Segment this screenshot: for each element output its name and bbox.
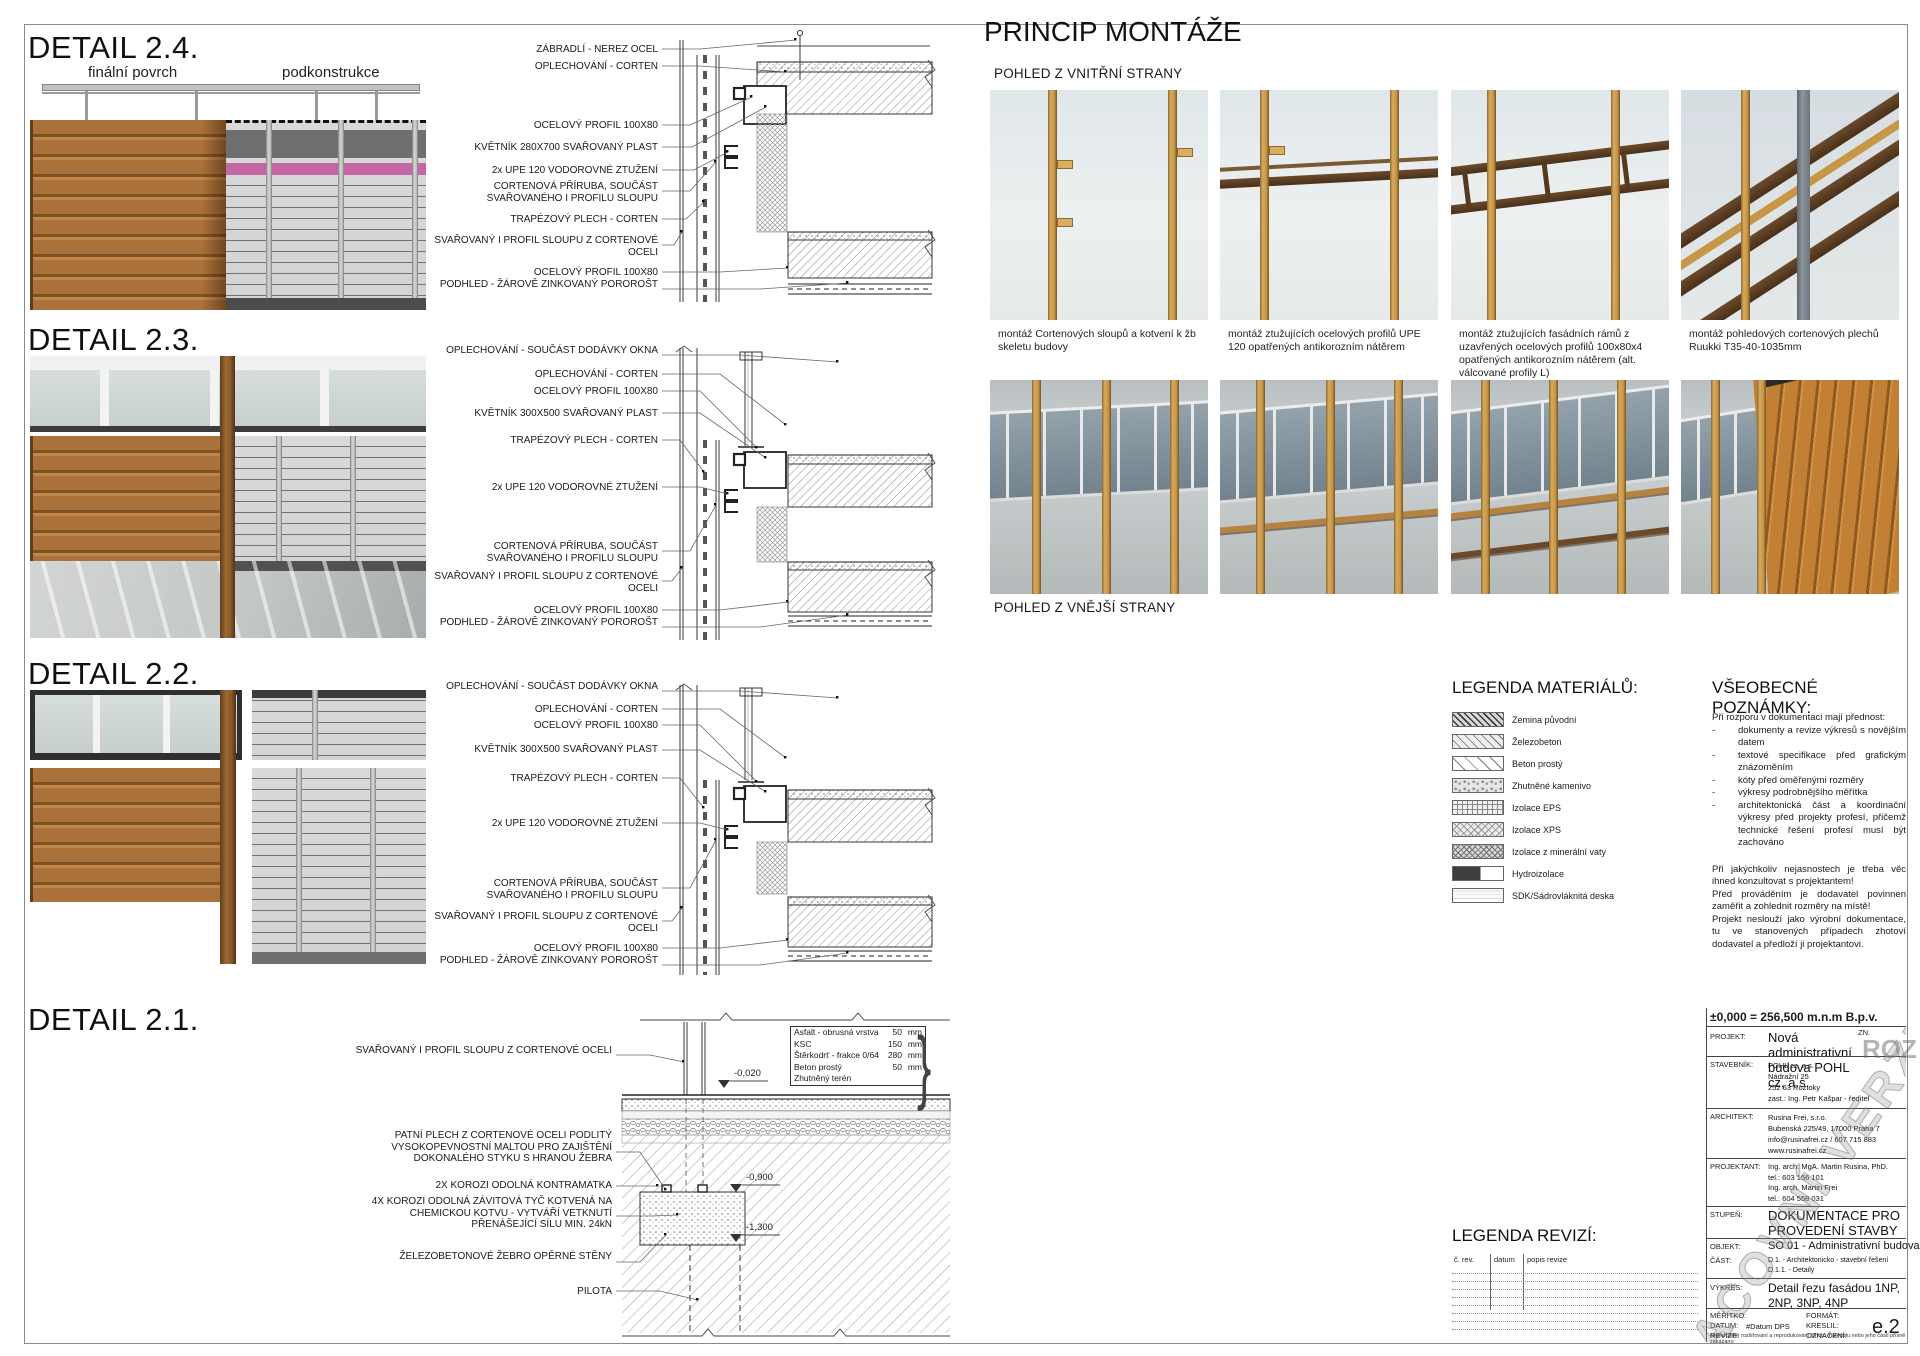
corten-post — [1741, 90, 1750, 320]
swatch-mineral-wool — [1452, 844, 1504, 859]
legend-materials-title: LEGENDA MATERIÁLŮ: — [1452, 678, 1638, 698]
label: SVAŘOVANÝ I PROFIL SLOUPU Z CORTENOVÉ OC… — [423, 571, 658, 594]
drawing-sheet: { "details": [ { "title": "DETAIL 2.4.",… — [0, 0, 1920, 1356]
date-value: #Datum DPS — [1746, 1321, 1790, 1332]
render-exterior-2 — [1220, 380, 1438, 594]
scale-label: MĚŘÍTKO: — [1710, 1311, 1746, 1320]
note-bullet: -textové specifikace před grafickým znáz… — [1712, 750, 1906, 775]
layer-row: KSC150mm — [791, 1039, 925, 1051]
wood-post — [1617, 380, 1626, 594]
swatch-xps — [1452, 822, 1504, 837]
facade-perspective — [1681, 380, 1899, 594]
swatch-waterproofing — [1452, 866, 1504, 881]
frame-rail — [1681, 90, 1899, 285]
subconstruction-panel — [232, 436, 426, 561]
render-interior-2 — [1220, 90, 1438, 320]
facade-perspective — [990, 380, 1208, 594]
wood-post — [1032, 380, 1041, 594]
label: 4X KOROZI ODOLNÁ ZÁVITOVÁ TYČ KOTVENÁ NA… — [348, 1196, 612, 1231]
elevation-mark: -0,020 — [734, 1068, 761, 1079]
legend-item: Izolace XPS — [1452, 822, 1692, 843]
notes-intro: Při rozporu v dokumentaci mají přednost: — [1712, 712, 1906, 725]
corten-post — [1611, 90, 1620, 320]
drawn-by-label: KRESLIL: — [1806, 1321, 1839, 1330]
bracket-tab — [1057, 218, 1073, 227]
label: PATNÍ PLECH Z CORTENOVÉ OCELI PODLITÝ VY… — [348, 1130, 612, 1165]
label: KVĚTNÍK 300X500 SVAŘOVANÝ PLAST — [423, 744, 658, 756]
render-caption: montáž pohledových cortenových plechů Ru… — [1689, 328, 1895, 354]
top-rail — [42, 84, 420, 91]
corten-cladding — [1752, 380, 1899, 594]
legend-item: Hydroizolace — [1452, 866, 1692, 887]
project-label: PROJEKT: — [1710, 1032, 1746, 1041]
stage-label: STUPEŇ: — [1710, 1210, 1743, 1219]
steel-pipe-column — [1797, 90, 1810, 320]
detail-2-4-facade-render — [30, 84, 426, 310]
rev-row — [1452, 1298, 1698, 1306]
label: OCELOVÝ PROFIL 100X80 — [423, 267, 658, 279]
dark-band — [252, 690, 426, 698]
rev-row — [1452, 1322, 1698, 1330]
view-label-outer: POHLED Z VNĚJŠÍ STRANY — [994, 600, 1175, 615]
subconstruction-panel — [252, 690, 426, 760]
label: SVAŘOVANÝ I PROFIL SLOUPU Z CORTENOVÉ OC… — [423, 911, 658, 934]
note-paragraph: Projekt neslouží jako výrobní dokumentac… — [1712, 914, 1906, 952]
architect-label: ARCHITEKT: — [1710, 1112, 1754, 1121]
sub-post — [266, 120, 272, 310]
format-label: FORMÁT: — [1806, 1311, 1839, 1320]
swatch-gypsum-board — [1452, 888, 1504, 903]
swatch-soil — [1452, 712, 1504, 727]
legend-item: Izolace z minerální vaty — [1452, 844, 1692, 865]
swatch-plain-concrete — [1452, 756, 1504, 771]
corten-post — [1487, 90, 1496, 320]
sub-post — [412, 120, 418, 310]
sub-post — [338, 120, 344, 310]
legend-item: Zemina původní — [1452, 712, 1692, 733]
base-band — [252, 952, 426, 964]
client-label: STAVEBNÍK: — [1710, 1060, 1753, 1069]
rev-row — [1452, 1306, 1698, 1314]
architect-lines: Rusina Frei, s.r.o.Bubenská 225/49, 1700… — [1768, 1112, 1880, 1156]
label: CORTENOVÁ PŘÍRUBA, SOUČÁST SVAŘOVANÉHO I… — [423, 181, 658, 204]
object-label: OBJEKT: — [1710, 1242, 1740, 1251]
designer-label: PROJEKTANT: — [1710, 1162, 1760, 1171]
date-label: DATUM: — [1710, 1321, 1738, 1330]
part-label: ČÁST: — [1710, 1256, 1731, 1265]
swatch-eps — [1452, 800, 1504, 815]
window-glass — [35, 695, 237, 753]
label: 2x UPE 120 VODOROVNÉ ZTUŽENÍ — [423, 482, 658, 494]
label: OCELOVÝ PROFIL 100X80 — [423, 605, 658, 617]
frame-rail — [1451, 139, 1669, 178]
label: OPLECHOVÁNÍ - SOUČÁST DODÁVKY OKNA — [423, 681, 658, 693]
render-exterior-3 — [1451, 380, 1669, 594]
ground-layers-table: Asfalt - obrusná vrstva50mm KSC150mm Ště… — [790, 1026, 926, 1086]
render-exterior-1 — [990, 380, 1208, 594]
stage-value: DOKUMENTACE PRO PROVEDENÍ STAVBY — [1768, 1208, 1900, 1238]
legend-item: Izolace EPS — [1452, 800, 1692, 821]
detail-2-4-sub-right: podkonstrukce — [282, 64, 380, 81]
magenta-band — [226, 163, 426, 175]
label: ZÁBRADLÍ - NEREZ OCEL — [423, 44, 658, 56]
label: OPLECHOVÁNÍ - CORTEN — [423, 704, 658, 716]
render-interior-1 — [990, 90, 1208, 320]
corten-slat-panel — [30, 120, 229, 310]
detail-2-4-title: DETAIL 2.4. — [28, 30, 199, 66]
rev-row — [1452, 1274, 1698, 1282]
render-interior-3 — [1451, 90, 1669, 320]
wood-post — [1326, 380, 1335, 594]
sub-post — [350, 436, 356, 561]
rev-row — [1452, 1282, 1698, 1290]
swatch-reinforced-concrete — [1452, 734, 1504, 749]
label: TRAPÉZOVÝ PLECH - CORTEN — [423, 435, 658, 447]
label: PILOTA — [348, 1286, 612, 1298]
layer-row: Beton prostý50mm — [791, 1062, 925, 1074]
corten-slat-panel — [30, 768, 223, 902]
label: CORTENOVÁ PŘÍRUBA, SOUČÁST SVAŘOVANÉHO I… — [423, 541, 658, 564]
upe-beam — [1220, 168, 1438, 189]
panel-fold-shadow — [202, 120, 226, 310]
label: 2X KOROZI ODOLNÁ KONTRAMATKA — [348, 1180, 612, 1192]
mullion — [93, 695, 100, 753]
revisions-title: LEGENDA REVIZÍ: — [1452, 1226, 1597, 1246]
sub-post — [276, 436, 282, 561]
legend-item: Beton prostý — [1452, 756, 1692, 777]
hanger-post — [85, 91, 88, 121]
rev-row — [1452, 1290, 1698, 1298]
label: TRAPÉZOVÝ PLECH - CORTEN — [423, 214, 658, 226]
corten-post — [1048, 90, 1057, 320]
render-caption: montáž Cortenových sloupů a kotvení k žb… — [998, 328, 1204, 354]
object-value: SO 01 - Administrativní budova — [1768, 1241, 1920, 1252]
label: PODHLED - ŽÁROVĚ ZINKOVANÝ POROROŠT — [423, 617, 658, 629]
wood-post — [1757, 380, 1766, 594]
wood-post — [1481, 380, 1490, 594]
top-rail-2 — [42, 92, 420, 94]
detail-2-1-title: DETAIL 2.1. — [28, 1002, 199, 1038]
rev-col-3: popis revize — [1527, 1255, 1567, 1264]
corten-post — [1260, 90, 1269, 320]
panel-top-edge — [226, 120, 426, 123]
layer-row: Štěrkodrť - frakce 0/64280mm — [791, 1050, 925, 1062]
detail-2-3-title: DETAIL 2.3. — [28, 322, 199, 358]
label: OCELOVÝ PROFIL 100X80 — [423, 943, 658, 955]
wood-post — [1102, 380, 1111, 594]
label: CORTENOVÁ PŘÍRUBA, SOUČÁST SVAŘOVANÉHO I… — [423, 878, 658, 901]
sheet-label: VÝKRES: — [1710, 1283, 1743, 1292]
view-label-inner: POHLED Z VNITŘNÍ STRANY — [994, 66, 1182, 81]
label: ŽELEZOBETONOVÉ ŽEBRO OPĚRNÉ STĚNY — [348, 1251, 612, 1263]
note-bullet: -kóty před oměřenými rozměry — [1712, 775, 1906, 788]
corten-column — [220, 356, 235, 638]
facade-perspective — [1451, 380, 1669, 594]
mullion — [320, 370, 329, 426]
label: KVĚTNÍK 280X700 SVAŘOVANÝ PLAST — [423, 142, 658, 154]
subconstruction-panel — [226, 120, 426, 310]
layer-row: Zhutněný terén — [791, 1073, 925, 1085]
fine-print: Nepovolené rozšiřování a reprodukování t… — [1710, 1333, 1906, 1345]
legend-item: Železobeton — [1452, 734, 1692, 755]
label: OCELOVÝ PROFIL 100X80 — [423, 720, 658, 732]
elevation-mark: -1,300 — [746, 1222, 773, 1233]
sub-post — [296, 768, 302, 952]
detail-2-4-sub-left: finální povrch — [88, 64, 177, 81]
label: PODHLED - ŽÁROVĚ ZINKOVANÝ POROROŠT — [423, 955, 658, 967]
corten-slat-panel — [30, 436, 223, 561]
layers-brace: } — [917, 1018, 931, 1114]
client-lines: POHL cz, a.s.Nádražní 25 252 63 Roztokyz… — [1768, 1060, 1869, 1104]
bracket-tab — [1057, 160, 1073, 169]
elevation-mark: -0,900 — [746, 1172, 773, 1183]
label: OPLECHOVÁNÍ - CORTEN — [423, 369, 658, 381]
rev-row — [1452, 1266, 1698, 1274]
mullion — [163, 695, 170, 753]
label: OPLECHOVÁNÍ - CORTEN — [423, 61, 658, 73]
wood-post — [1711, 380, 1720, 594]
titleblock-border — [1706, 1008, 1707, 1342]
frame-rail — [1451, 177, 1669, 216]
facade-perspective — [1220, 380, 1438, 594]
hanger-post — [375, 91, 378, 121]
sheet-value: Detail řezu fasádou 1NP, 2NP, 3NP, 4NP — [1768, 1281, 1900, 1311]
note-bullet: -dokumenty a revize výkresů s novějším d… — [1712, 725, 1906, 750]
detail-2-2-facade-render — [30, 690, 426, 964]
note-paragraph: Před prováděním je dodavatel povinnen za… — [1712, 889, 1906, 914]
render-caption: montáž ztužujících ocelových profilů UPE… — [1228, 328, 1434, 354]
part-lines: D.1. - Architektonicko - stavební řešení… — [1768, 1256, 1888, 1275]
hanger-post — [315, 91, 318, 121]
general-notes: Při rozporu v dokumentaci mají přednost:… — [1712, 712, 1906, 951]
label: SVAŘOVANÝ I PROFIL SLOUPU Z CORTENOVÉ OC… — [423, 235, 658, 258]
note-paragraph: Při jakýchkoliv nejasnostech je třeba vě… — [1712, 864, 1906, 889]
dark-band — [226, 130, 426, 158]
label: PODHLED - ŽÁROVĚ ZINKOVANÝ POROROŠT — [423, 279, 658, 291]
label: OCELOVÝ PROFIL 100X80 — [423, 386, 658, 398]
label: OCELOVÝ PROFIL 100X80 — [423, 120, 658, 132]
layer-row: Asfalt - obrusná vrstva50mm — [791, 1027, 925, 1039]
legend-item: Zhutněné kamenivo — [1452, 778, 1692, 799]
diagonal-structure — [1681, 90, 1899, 320]
label: KVĚTNÍK 300X500 SVAŘOVANÝ PLAST — [423, 408, 658, 420]
label: TRAPÉZOVÝ PLECH - CORTEN — [423, 773, 658, 785]
wood-post — [1394, 380, 1403, 594]
princip-title: PRINCIP MONTÁŽE — [984, 16, 1242, 48]
corten-column — [220, 690, 236, 964]
mullion — [210, 370, 219, 426]
designer-lines: Ing. arch. MgA. Martin Rusina, PhD.tel.:… — [1768, 1162, 1888, 1204]
render-exterior-4 — [1681, 380, 1899, 594]
mullion — [100, 370, 109, 426]
render-interior-4 — [1681, 90, 1899, 320]
note-bullet: -výkresy podrobnějšího měřítka — [1712, 787, 1906, 800]
note-bullet: -architektonická část a koordinační výkr… — [1712, 800, 1906, 850]
hanger-post — [195, 91, 198, 121]
window-frame — [30, 690, 242, 760]
sub-post — [312, 690, 318, 760]
rev-col-2: datum — [1494, 1255, 1515, 1264]
render-caption: montáž ztužujících fasádních rámů z uzav… — [1459, 328, 1665, 380]
label: 2x UPE 120 VODOROVNÉ ZTUŽENÍ — [423, 818, 658, 830]
detail-2-2-title: DETAIL 2.2. — [28, 656, 199, 692]
base-band — [226, 298, 426, 310]
watermark-stamp: ROZ — [1862, 1034, 1917, 1065]
bracket-tab — [1177, 148, 1193, 157]
rev-row — [1452, 1314, 1698, 1322]
subconstruction-panel — [252, 768, 426, 952]
corten-post — [1168, 90, 1177, 320]
facade-frame — [1451, 115, 1669, 265]
wood-post — [1549, 380, 1558, 594]
datum-elevation: ±0,000 = 256,500 m.n.m B.p.v. — [1710, 1010, 1877, 1024]
corten-post — [1390, 90, 1399, 320]
label: SVAŘOVANÝ I PROFIL SLOUPU Z CORTENOVÉ OC… — [348, 1045, 612, 1057]
detail-2-3-facade-render — [30, 356, 426, 638]
bracket-tab — [1269, 146, 1285, 155]
rev-col-1: č. rev. — [1454, 1255, 1474, 1264]
wood-post — [1170, 380, 1179, 594]
legend-item: SDK/Sádrovláknitá deska — [1452, 888, 1692, 909]
swatch-compacted-aggregate — [1452, 778, 1504, 793]
sub-post — [370, 768, 376, 952]
label: 2x UPE 120 VODOROVNÉ ZTUŽENÍ — [423, 165, 658, 177]
wood-post — [1256, 380, 1265, 594]
label: OPLECHOVÁNÍ - SOUČÁST DODÁVKY OKNA — [423, 345, 658, 357]
